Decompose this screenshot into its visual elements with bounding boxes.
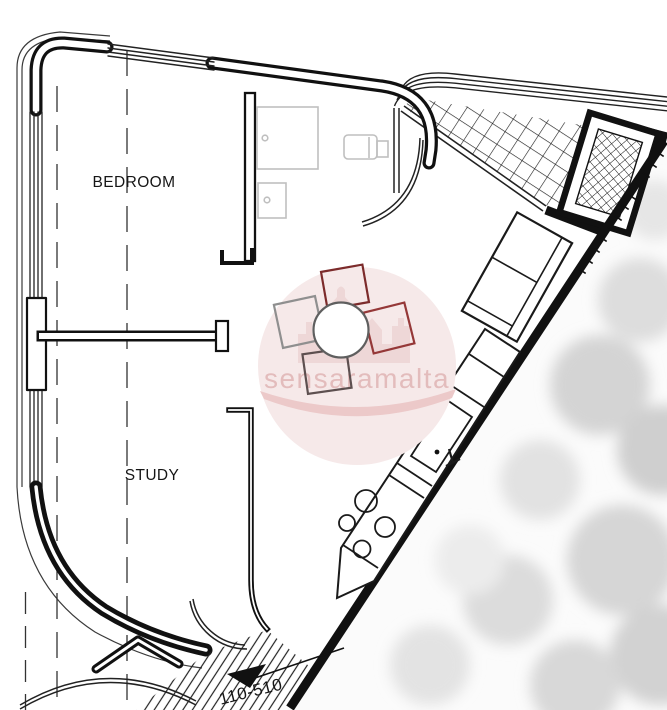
terrace-door-arc — [362, 138, 420, 222]
fixture-cabinet — [257, 107, 318, 169]
grey-fixtures — [257, 107, 388, 218]
bedroom-label: BEDROOM — [93, 174, 176, 191]
floor-plan-svg: sensaramalta 110-510 B — [0, 0, 667, 710]
dining-table — [314, 303, 369, 358]
partition-end-post — [216, 321, 228, 351]
fixture-unit — [258, 183, 286, 218]
bedroom-right-wall — [245, 93, 255, 261]
top-window — [108, 44, 214, 70]
study-label: STUDY — [125, 467, 180, 484]
floor-plan-page: sensaramalta 110-510 B — [0, 0, 667, 710]
washer-module — [377, 141, 388, 157]
left-wall-pier — [27, 298, 46, 390]
watermark: sensaramalta — [258, 267, 456, 465]
washing-machine — [344, 135, 377, 159]
watermark-text: sensaramalta — [264, 363, 450, 394]
sink-drain — [435, 450, 440, 455]
study-right-wall — [229, 410, 267, 629]
